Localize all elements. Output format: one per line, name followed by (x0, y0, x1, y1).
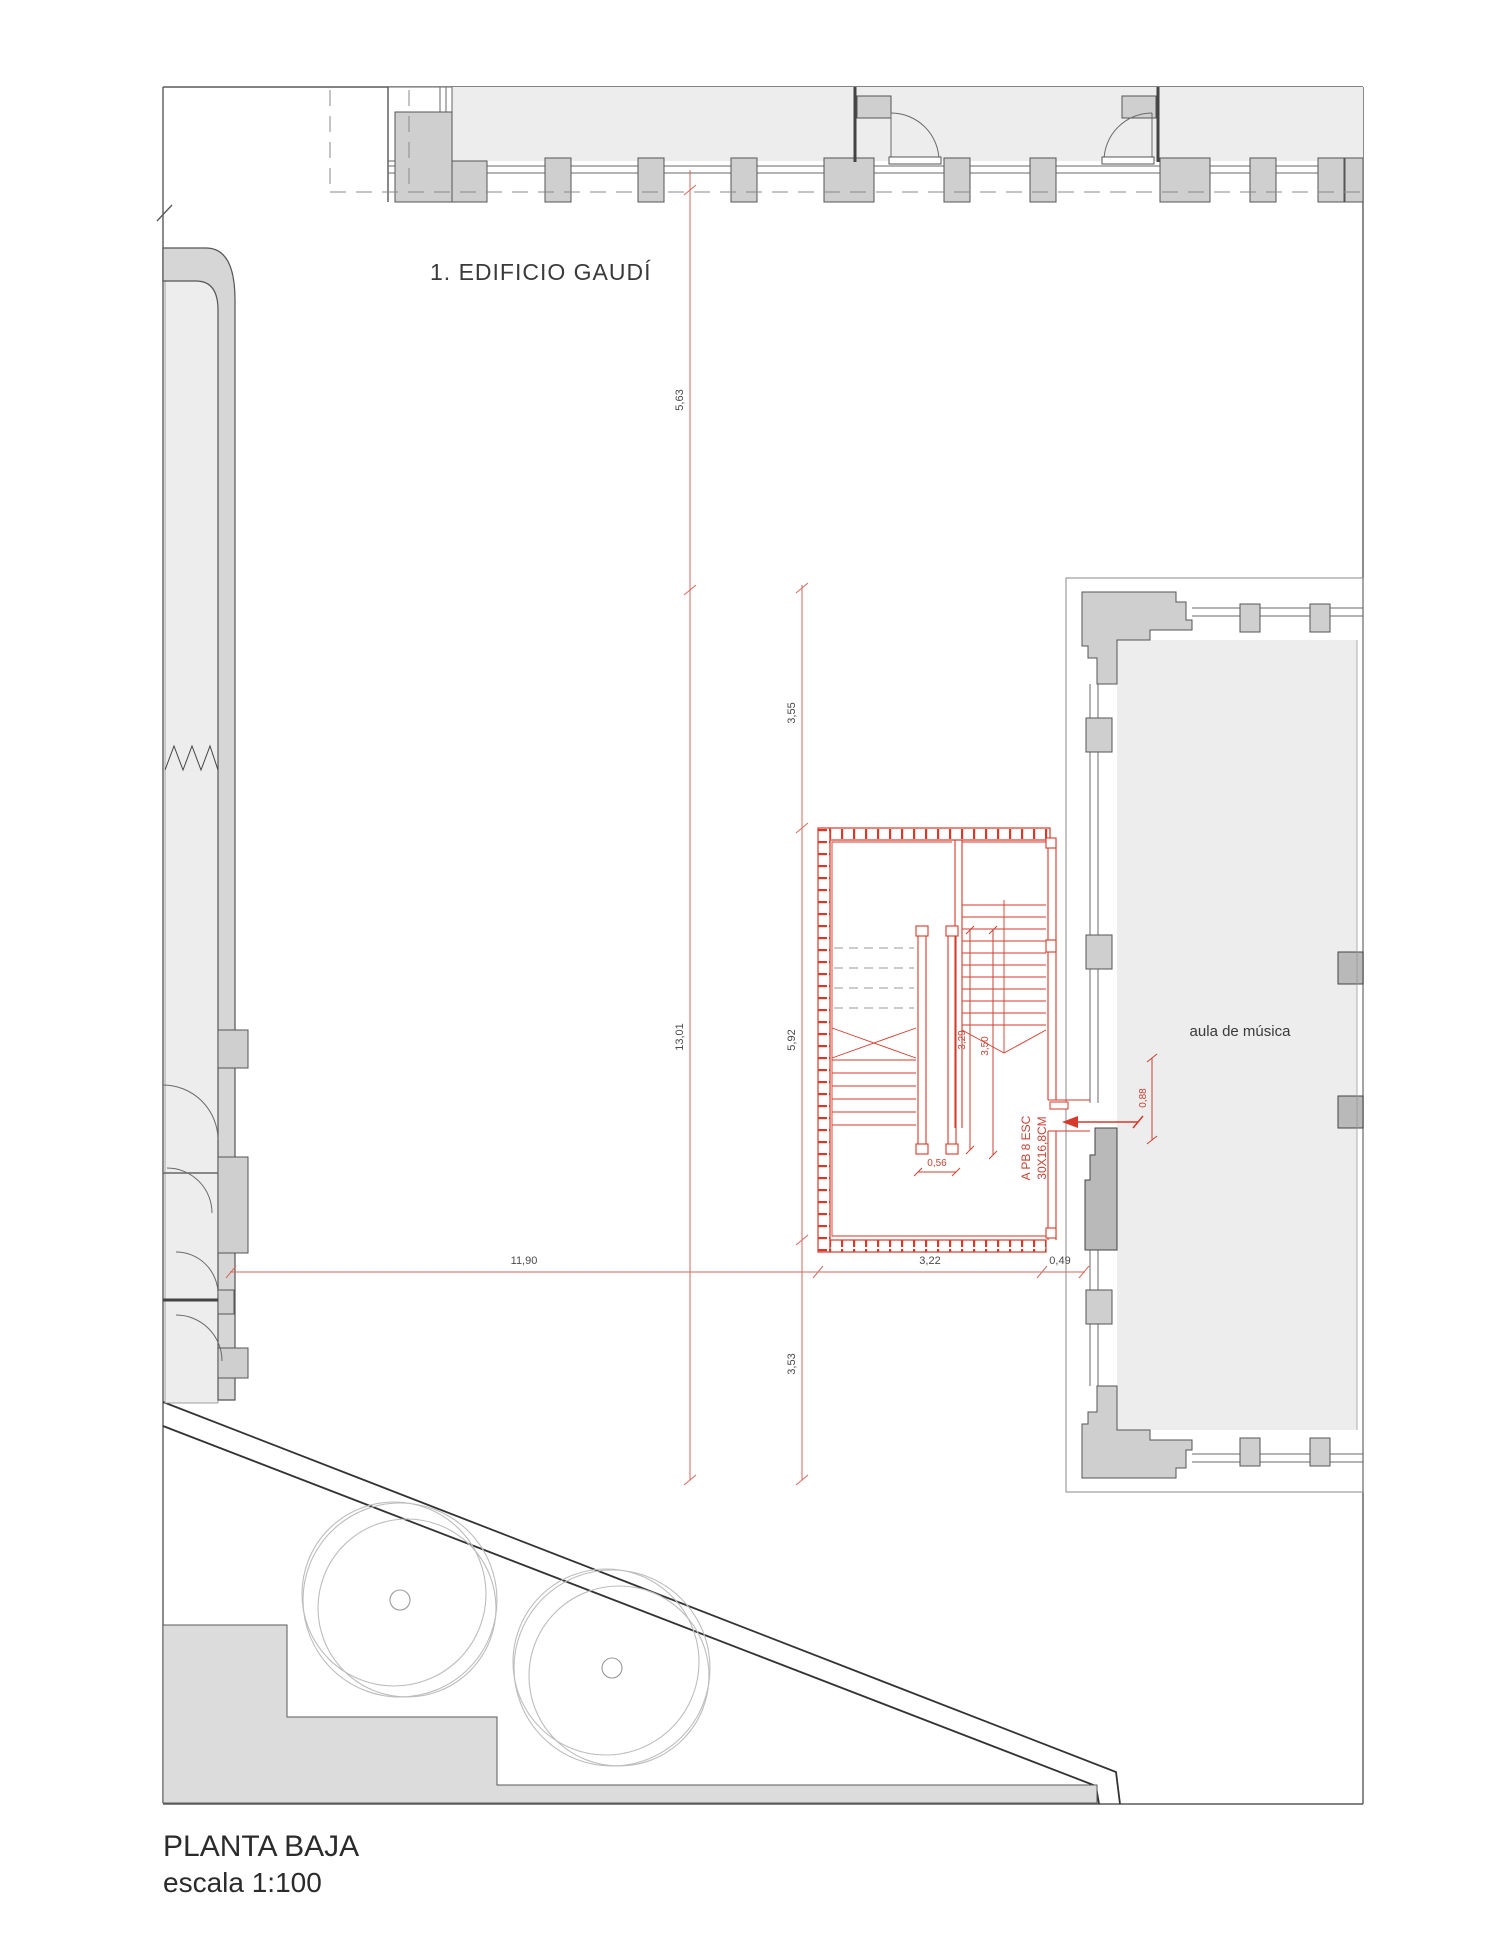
dim-flight-a: 3,29 (957, 1030, 968, 1050)
left-flight-treads (832, 1028, 916, 1125)
left-building (163, 248, 248, 1403)
dim-v1-upper: 5,63 (674, 389, 686, 410)
upper-building (330, 87, 1363, 202)
elevator-core-caps (916, 926, 958, 1154)
facade-piers (545, 158, 1363, 202)
dim-v2-lower: 3,53 (786, 1353, 798, 1374)
elevator-core (918, 928, 956, 1152)
floor-plan-page: aula de música (0, 0, 1512, 1959)
boundary-tick (157, 205, 172, 221)
aula-left-windows (1090, 684, 1098, 1386)
door-threshold (889, 157, 941, 164)
stair-note-line1: A PB 8 ESC (1019, 1115, 1033, 1180)
stair-note-line2: 30X16,8CM (1035, 1116, 1049, 1179)
door-threshold (1102, 157, 1154, 164)
building-label: 1. EDIFICIO GAUDÍ (430, 259, 651, 285)
stair-wall-left (818, 828, 830, 1252)
floor-plan-canvas: aula de música (0, 0, 1512, 1959)
dim-v1-lower: 13,01 (674, 1023, 686, 1051)
left-building-floor (165, 281, 218, 1403)
right-building: aula de música (1066, 578, 1363, 1492)
main-dimension-texts: 5,63 13,01 3,55 5,92 3,53 11,90 3,22 0,4… (511, 389, 1071, 1374)
under-landing-dashed-treads (834, 948, 914, 1008)
dim-h-left: 11,90 (511, 1255, 538, 1267)
stair-wall-right (1048, 840, 1056, 1240)
tree-canopy (529, 1586, 709, 1766)
upper-building-floor (452, 87, 1363, 161)
dim-flight-b: 3,50 (980, 1036, 991, 1056)
dim-core-width: 0,56 (927, 1158, 947, 1169)
title-block: PLANTA BAJA escala 1:100 (163, 1830, 359, 1898)
stair-wall-top (830, 828, 1050, 840)
partition-pier (857, 96, 891, 118)
dim-h-right: 0,49 (1049, 1255, 1070, 1267)
entrance-door-leaf (1050, 1102, 1068, 1109)
room-label: aula de música (1190, 1023, 1292, 1040)
aula-column (1338, 1096, 1363, 1128)
drawing-title: PLANTA BAJA (163, 1830, 359, 1863)
tree-trunk (390, 1590, 410, 1610)
corner-pier (452, 161, 487, 202)
drawing-scale: escala 1:100 (163, 1867, 322, 1898)
tree-canopy (318, 1519, 496, 1697)
aula-column (1338, 952, 1363, 984)
stair-wall-bottom (830, 1240, 1046, 1252)
dim-v2-upper: 3,55 (786, 702, 798, 723)
aula-stepped-pier (1085, 1128, 1117, 1250)
corner-pier (395, 112, 452, 202)
tree-trunk (602, 1658, 622, 1678)
right-flight-treads (962, 900, 1046, 1053)
exterior-steps (163, 1625, 1097, 1803)
dim-h-middle: 3,22 (919, 1255, 940, 1267)
dim-v2-middle: 5,92 (786, 1029, 798, 1050)
tree-1 (302, 1502, 497, 1697)
dim-door-width: 0,88 (1138, 1088, 1149, 1108)
entrance-arrow-head (1062, 1116, 1078, 1128)
